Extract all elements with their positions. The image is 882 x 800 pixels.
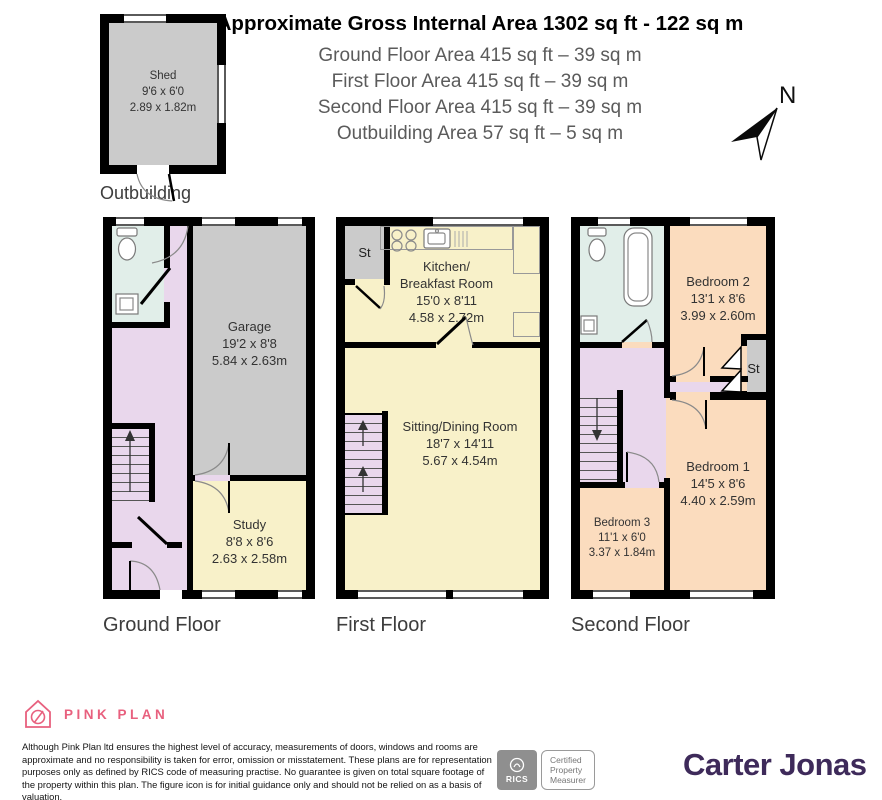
second-stairs [580, 390, 617, 482]
study-dims-metric: 2.63 x 2.58m [193, 550, 306, 567]
hall-door-stub-right [167, 542, 182, 548]
kitchen-divider-wall-right [472, 342, 540, 348]
first-window-bottom-2 [453, 590, 523, 599]
shed-plan: Shed 9'6 x 6'0 2.89 x 1.82m [100, 14, 226, 174]
ground-window-bottom-study2 [278, 590, 302, 599]
ground-floor-label: Ground Floor [103, 614, 221, 637]
bedroom3-top-wall-left [617, 482, 625, 488]
kitchen-dims-metric: 4.58 x 2.72m [375, 309, 518, 326]
kitchen-counter-top [380, 226, 513, 250]
sitting-room-label: Sitting/Dining Room 18'7 x 14'11 5.67 x … [385, 418, 535, 469]
ground-window-top-garage1 [202, 217, 235, 226]
sitting-room-name: Sitting/Dining Room [385, 418, 535, 435]
garage-name: Garage [193, 318, 306, 335]
shed-dims-imperial: 9'6 x 6'0 [109, 84, 217, 100]
kitchen-name-line2: Breakfast Room [375, 275, 518, 292]
stairs-right-wall [149, 423, 155, 502]
second-storage-label: St [741, 340, 766, 397]
kitchen-dims-imperial: 15'0 x 8'11 [375, 292, 518, 309]
outbuilding-label: Outbuilding [100, 183, 191, 204]
shed-window-top [124, 14, 166, 23]
ground-stairs [112, 429, 149, 502]
ground-floor-plan: Garage 19'2 x 8'8 5.84 x 2.63m Study 8'8… [103, 217, 315, 599]
garage-study-wall-right [230, 475, 306, 481]
rics-label-line1: Certified [550, 755, 586, 765]
second-floor-label: Second Floor [571, 614, 690, 637]
bedroom2-name: Bedroom 2 [670, 273, 766, 290]
rics-label-line3: Measurer [550, 775, 586, 785]
bedroom2-dims-metric: 3.99 x 2.60m [670, 307, 766, 324]
first-window-top [433, 217, 523, 226]
bedroom1-dims-metric: 4.40 x 2.59m [670, 492, 766, 509]
shed-window-right [217, 65, 226, 123]
floorplan-page: Approximate Gross Internal Area 1302 sq … [0, 0, 882, 800]
second-floor-plan: St Bedroom 2 13'1 x 8'6 3.99 x 2.60m Bed… [571, 217, 775, 599]
pink-plan-house-icon [22, 698, 54, 730]
compass-north-label: N [779, 82, 796, 109]
ground-window-bottom-study1 [202, 590, 235, 599]
garage-dims-imperial: 19'2 x 8'8 [193, 335, 306, 352]
ground-window-top-garage2 [278, 217, 302, 226]
shed-label: Shed 9'6 x 6'0 2.89 x 1.82m [109, 68, 217, 116]
disclaimer-text: Although Pink Plan ltd ensures the highe… [22, 741, 492, 800]
landing-right-wall [664, 348, 670, 398]
bedroom2-dims-imperial: 13'1 x 8'6 [670, 290, 766, 307]
wc-room [112, 226, 164, 322]
first-floor-label: First Floor [336, 614, 426, 637]
shed-door-opening [137, 165, 169, 174]
pink-plan-brand: PINK PLAN [22, 698, 168, 730]
bedroom3-label: Bedroom 3 11'1 x 6'0 3.37 x 1.84m [580, 516, 664, 561]
first-stairs [345, 413, 382, 515]
second-window-top-bedroom2 [690, 217, 747, 226]
bathroom-room [580, 226, 664, 342]
rics-logo: RICS [497, 750, 537, 790]
ground-entrance-opening [160, 590, 182, 599]
hall-door-stub-left [112, 542, 132, 548]
bedroom1-name: Bedroom 1 [670, 458, 766, 475]
sitting-room-dims-imperial: 18'7 x 14'11 [385, 435, 535, 452]
study-label: Study 8'8 x 8'6 2.63 x 2.58m [193, 516, 306, 567]
carter-jonas-logo: Carter Jonas [683, 747, 867, 783]
rics-label-line2: Property [550, 765, 586, 775]
bedroom3-name: Bedroom 3 [580, 516, 664, 531]
north-arrow-icon: N [725, 80, 810, 170]
kitchen-name-line1: Kitchen/ [375, 258, 518, 275]
ground-window-top-wc [116, 217, 144, 226]
study-name: Study [193, 516, 306, 533]
bedroom1-top-wall-left [670, 392, 676, 400]
bedroom1-label: Bedroom 1 14'5 x 8'6 4.40 x 2.59m [670, 458, 766, 509]
first-window-bottom-1 [358, 590, 446, 599]
rics-badge: RICS Certified Property Measurer [497, 750, 595, 790]
shed-name: Shed [109, 68, 217, 84]
first-storage-bottom-wall [345, 279, 355, 285]
second-window-top-bathroom [598, 217, 630, 226]
bathroom-bottom-wall-left [580, 342, 622, 348]
wc-right-wall-lower [164, 302, 170, 322]
bedroom3-dims-metric: 3.37 x 1.84m [580, 546, 664, 561]
bedroom3-dims-imperial: 11'1 x 6'0 [580, 531, 664, 546]
rics-abbr: RICS [506, 774, 528, 784]
study-dims-imperial: 8'8 x 8'6 [193, 533, 306, 550]
bedroom2-label: Bedroom 2 13'1 x 8'6 3.99 x 2.60m [670, 273, 766, 324]
second-window-bottom-bedroom1 [690, 590, 753, 599]
page-title: Approximate Gross Internal Area 1302 sq … [130, 12, 830, 36]
landing-corridor [670, 382, 741, 392]
rics-certification-label: Certified Property Measurer [541, 750, 595, 790]
garage-label: Garage 19'2 x 8'8 5.84 x 2.63m [193, 318, 306, 369]
pink-plan-wordmark: PINK PLAN [64, 707, 168, 722]
bedroom2-bottom-wall-left [670, 376, 676, 382]
rics-lion-icon [509, 757, 525, 773]
kitchen-divider-wall-left [345, 342, 436, 348]
bedroom1-dims-imperial: 14'5 x 8'6 [670, 475, 766, 492]
wc-bottom-wall [112, 322, 170, 328]
wc-right-wall-upper [164, 226, 170, 268]
second-window-bottom-bedroom3 [593, 590, 630, 599]
shed-dims-metric: 2.89 x 1.82m [109, 100, 217, 116]
sitting-room-dims-metric: 5.67 x 4.54m [385, 452, 535, 469]
area-line-ground: Ground Floor Area 415 sq ft – 39 sq m [130, 43, 830, 69]
garage-dims-metric: 5.84 x 2.63m [193, 352, 306, 369]
kitchen-label: Kitchen/ Breakfast Room 15'0 x 8'11 4.58… [375, 258, 518, 326]
second-stairs-right-wall [617, 390, 623, 488]
first-floor-plan: St Kitchen/ Breakfast Room 15'0 x 8'11 4… [336, 217, 549, 599]
